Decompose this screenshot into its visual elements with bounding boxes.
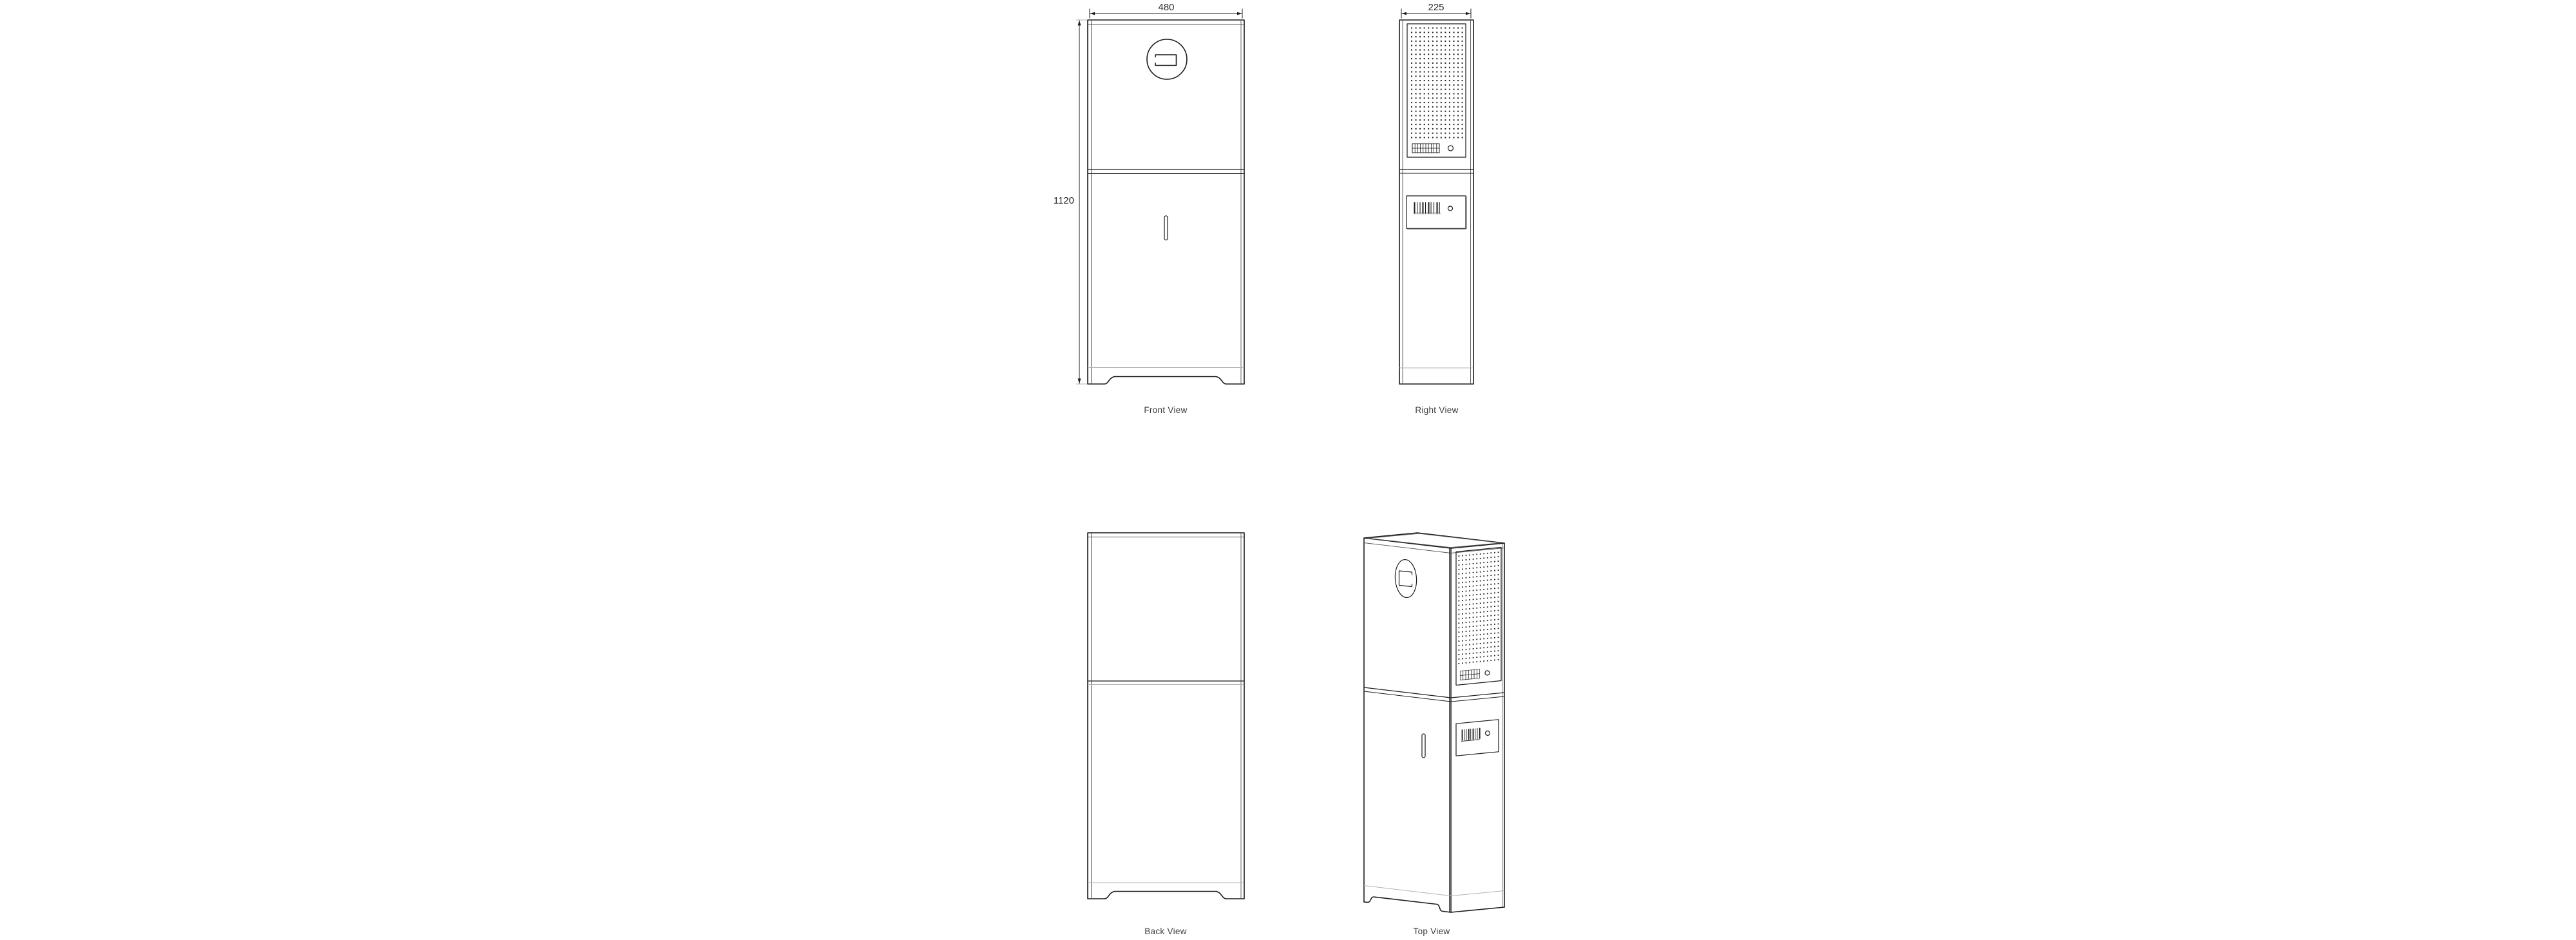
perforation-dot xyxy=(1476,647,1477,649)
perforation-dot xyxy=(1476,630,1477,631)
perforation-dot xyxy=(1476,554,1477,555)
perforation-dot xyxy=(1454,97,1455,99)
perforation-dot xyxy=(1436,62,1437,64)
perforation-dot xyxy=(1476,571,1477,573)
perforation-dot xyxy=(1428,137,1429,139)
perforation-dot xyxy=(1494,660,1495,661)
perforation-dot xyxy=(1462,662,1463,664)
perforation-dot xyxy=(1416,84,1417,86)
perforation-dot xyxy=(1490,584,1492,585)
perforation-dot xyxy=(1424,50,1425,51)
perforation-dot xyxy=(1462,53,1463,55)
perforation-dot xyxy=(1416,80,1417,81)
perforation-dot xyxy=(1473,559,1474,560)
perforation-dot xyxy=(1483,660,1484,662)
perforation-dot xyxy=(1498,624,1499,625)
perforation-dot xyxy=(1466,609,1467,610)
perforation-dot xyxy=(1480,647,1481,649)
perforation-dot xyxy=(1462,600,1463,601)
perforation-dot xyxy=(1416,106,1417,108)
perforation-dot xyxy=(1424,102,1425,103)
perforation-dot xyxy=(1476,603,1477,604)
perforation-dot xyxy=(1483,607,1484,608)
perforation-dot xyxy=(1487,575,1488,577)
perforation-dot xyxy=(1419,28,1421,29)
perforation-dot xyxy=(1462,32,1463,33)
perforation-dot xyxy=(1498,601,1499,602)
perforation-dot xyxy=(1487,602,1488,603)
perforation-dot xyxy=(1457,102,1459,103)
perforation-dot xyxy=(1432,67,1434,68)
perforation-dot xyxy=(1432,45,1434,46)
iso-front-top-seam xyxy=(1364,543,1451,553)
perforation-dot xyxy=(1428,53,1429,55)
barcode xyxy=(1414,202,1441,215)
perforation-dot xyxy=(1466,617,1467,619)
perforation-dot xyxy=(1487,624,1488,626)
perforation-dot xyxy=(1411,67,1412,68)
perforation-dot xyxy=(1476,657,1477,658)
perforation-dot xyxy=(1449,67,1450,68)
perforation-dot xyxy=(1436,50,1437,51)
perforation-dot xyxy=(1473,608,1474,609)
perforation-dot xyxy=(1441,45,1442,46)
perforation-dot xyxy=(1466,662,1467,664)
perforation-dot xyxy=(1462,128,1463,129)
perforation-dot xyxy=(1457,53,1459,55)
perforation-dot xyxy=(1469,581,1470,582)
perforation-dot xyxy=(1428,45,1429,46)
perforation-dot xyxy=(1436,80,1437,81)
perforation-dot xyxy=(1469,644,1470,646)
perforation-dot xyxy=(1419,45,1421,46)
perforation-dot xyxy=(1476,626,1477,627)
perforation-dot xyxy=(1457,36,1459,37)
perforation-dot xyxy=(1466,600,1467,601)
perforation-dot xyxy=(1457,133,1459,134)
perforation-dot xyxy=(1459,587,1460,588)
perforation-dot xyxy=(1483,557,1484,559)
iso-side-bottom-edge xyxy=(1451,907,1504,912)
perforation-dot xyxy=(1424,80,1425,81)
perforation-dot xyxy=(1428,115,1429,117)
perforation-dot xyxy=(1480,638,1481,640)
perforation-dot xyxy=(1454,106,1455,108)
right-outline xyxy=(1399,20,1473,384)
perforation-dot xyxy=(1416,50,1417,51)
iso-barcode xyxy=(1461,728,1481,742)
perforation-dot xyxy=(1454,137,1455,139)
perforation-dot xyxy=(1459,614,1460,615)
perforation-dot xyxy=(1480,562,1481,564)
perforation-dot xyxy=(1424,111,1425,112)
perforation-dot xyxy=(1436,133,1437,134)
perforation-dot xyxy=(1454,93,1455,95)
barcode-bar xyxy=(1439,202,1440,214)
perforation-dot xyxy=(1494,588,1495,589)
perforation-dot xyxy=(1469,613,1470,614)
perforation-dot xyxy=(1449,28,1450,29)
perforation-dot xyxy=(1473,581,1474,582)
perforation-dot xyxy=(1416,124,1417,125)
perforation-dot xyxy=(1444,124,1446,125)
perforation-dot xyxy=(1449,72,1450,73)
perforation-dot xyxy=(1462,640,1463,642)
perforation-dot xyxy=(1462,586,1463,588)
perforation-dot xyxy=(1454,41,1455,42)
right-depth-value: 225 xyxy=(1428,2,1444,13)
perforation-dot xyxy=(1454,102,1455,103)
perforation-dot xyxy=(1469,590,1470,591)
perforation-dot xyxy=(1490,642,1492,643)
perforation-dot xyxy=(1476,599,1477,600)
perforation-dot xyxy=(1449,137,1450,139)
perforation-dot xyxy=(1441,84,1442,86)
perforation-dot xyxy=(1436,124,1437,125)
perforation-dot xyxy=(1480,594,1481,595)
perforation-dot xyxy=(1462,569,1463,570)
top-view: Top View xyxy=(1364,533,1504,936)
perforation-dot xyxy=(1416,32,1417,33)
perforation-dot xyxy=(1411,115,1412,117)
perforation-dot xyxy=(1454,80,1455,81)
perforation-dots xyxy=(1411,28,1463,139)
perforation-dot xyxy=(1411,119,1412,120)
extension-lines xyxy=(1076,20,1087,384)
perforation-dot xyxy=(1473,653,1474,654)
perforation-dot xyxy=(1444,115,1446,117)
perforation-dot xyxy=(1436,102,1437,103)
perforation-dot xyxy=(1466,564,1467,565)
perforation-dot xyxy=(1444,67,1446,68)
perforation-dot xyxy=(1457,128,1459,129)
perforation-dot xyxy=(1454,53,1455,55)
perforation-dot xyxy=(1480,620,1481,622)
perforation-dot xyxy=(1494,628,1495,629)
front-width-value: 480 xyxy=(1158,2,1174,13)
perforation-dot xyxy=(1459,555,1460,557)
perforation-dot xyxy=(1483,638,1484,640)
perforation-dot xyxy=(1444,93,1446,95)
perforation-dot xyxy=(1449,128,1450,129)
perforation-dot xyxy=(1473,639,1474,640)
perforation-dot xyxy=(1419,72,1421,73)
perforation-dot xyxy=(1449,93,1450,95)
perforation-dot xyxy=(1459,609,1460,611)
perforation-dot xyxy=(1428,50,1429,51)
perforation-dot xyxy=(1444,28,1446,29)
perforation-dot xyxy=(1494,606,1495,607)
perforation-dot xyxy=(1490,566,1492,567)
perforation-dot xyxy=(1444,41,1446,42)
perforation-dot xyxy=(1469,595,1470,596)
perforation-dot xyxy=(1498,579,1499,580)
perforation-dot xyxy=(1462,97,1463,99)
arrow-right-icon xyxy=(1466,12,1471,15)
perforation-dot xyxy=(1462,119,1463,120)
perforation-dot xyxy=(1473,630,1474,631)
perforation-dot xyxy=(1494,619,1495,620)
perforation-dot xyxy=(1469,577,1470,578)
perforation-dot xyxy=(1487,557,1488,559)
perforation-dot xyxy=(1459,619,1460,620)
perforation-dot xyxy=(1487,611,1488,612)
perforation-dot xyxy=(1457,67,1459,68)
perforation-dot xyxy=(1444,111,1446,112)
perforation-dot xyxy=(1416,93,1417,95)
perforation-dot xyxy=(1419,84,1421,86)
perforation-dot xyxy=(1428,119,1429,120)
perforation-dot xyxy=(1469,572,1470,573)
perforation-dot xyxy=(1469,608,1470,609)
perforation-dot xyxy=(1441,41,1442,42)
perforation-dot xyxy=(1466,613,1467,614)
perforation-dot xyxy=(1459,569,1460,570)
perforation-dot xyxy=(1480,625,1481,626)
perforation-dot xyxy=(1457,137,1459,139)
perforation-dot xyxy=(1480,643,1481,644)
perforation-dot xyxy=(1462,618,1463,619)
perforation-dot xyxy=(1494,597,1495,598)
perforation-dot xyxy=(1462,72,1463,73)
perforation-dot xyxy=(1419,93,1421,95)
perforation-dot xyxy=(1454,84,1455,86)
perforation-dot xyxy=(1449,111,1450,112)
perforation-dot xyxy=(1494,552,1495,553)
perforation-dot xyxy=(1459,663,1460,664)
perforation-dot xyxy=(1462,654,1463,655)
perforation-dot xyxy=(1490,651,1492,652)
perforation-dot xyxy=(1424,58,1425,59)
barcode-bar xyxy=(1479,728,1481,739)
perforation-dot xyxy=(1498,570,1499,571)
perforation-dot xyxy=(1424,137,1425,139)
perforation-dot xyxy=(1441,67,1442,68)
perforation-dot xyxy=(1432,80,1434,81)
perforation-dot xyxy=(1444,58,1446,59)
perforation-dot xyxy=(1476,590,1477,591)
iso-side-top-seam xyxy=(1451,548,1504,553)
perforation-dot xyxy=(1466,555,1467,556)
barcode-bar xyxy=(1466,729,1466,740)
perforation-dot xyxy=(1469,649,1470,650)
iso-brand-logo-circle-icon xyxy=(1394,559,1417,598)
barcode-bar xyxy=(1470,729,1471,740)
perforation-dot xyxy=(1411,111,1412,112)
perforation-dot xyxy=(1419,50,1421,51)
perforation-dot xyxy=(1459,605,1460,606)
perforation-dot xyxy=(1469,626,1470,628)
perforation-dot xyxy=(1441,32,1442,33)
perforation-dot xyxy=(1462,80,1463,81)
perforation-dot xyxy=(1490,633,1492,634)
right-view: 225 Right View xyxy=(1399,2,1473,415)
perforation-dot xyxy=(1462,649,1463,651)
perforation-dot xyxy=(1457,50,1459,51)
perforation-dot xyxy=(1483,553,1484,554)
vent-indicator-circle xyxy=(1448,146,1454,151)
arrow-down-icon xyxy=(1078,379,1081,385)
iso-front-base-line xyxy=(1364,886,1451,896)
perforation-dot xyxy=(1498,588,1499,589)
perforation-dot xyxy=(1480,576,1481,577)
perforation-dot xyxy=(1419,53,1421,55)
perforation-dot xyxy=(1466,573,1467,574)
perforation-dot xyxy=(1424,119,1425,120)
perforation-dot xyxy=(1432,75,1434,77)
perforation-dot xyxy=(1441,119,1442,120)
perforation-dot xyxy=(1436,41,1437,42)
perforation-dot xyxy=(1419,111,1421,112)
perforation-dot xyxy=(1494,570,1495,571)
perforation-dot xyxy=(1449,45,1450,46)
perforation-dot xyxy=(1419,119,1421,120)
perforation-dot xyxy=(1466,568,1467,570)
perforation-dot xyxy=(1462,28,1463,29)
barcode-bar xyxy=(1475,728,1475,739)
perforation-dot xyxy=(1432,53,1434,55)
perforation-dot xyxy=(1436,32,1437,33)
perforation-dot xyxy=(1454,115,1455,117)
perforation-dot xyxy=(1416,72,1417,73)
perforation-dot xyxy=(1487,606,1488,608)
front-height-dimension: 1120 xyxy=(1054,20,1087,384)
perforation-dot xyxy=(1462,631,1463,633)
perforation-dot xyxy=(1444,97,1446,99)
perforation-dot xyxy=(1454,32,1455,33)
perforation-dot xyxy=(1466,591,1467,592)
perforation-dot xyxy=(1459,560,1460,561)
perforation-dot xyxy=(1462,67,1463,68)
perforation-dot xyxy=(1449,50,1450,51)
perforation-dot xyxy=(1457,111,1459,112)
barcode-bar xyxy=(1464,729,1464,740)
perforation-dot xyxy=(1498,615,1499,616)
perforation-dot xyxy=(1498,632,1499,633)
perforation-dot xyxy=(1457,115,1459,117)
perforation-dot xyxy=(1432,115,1434,117)
perforation-dot xyxy=(1454,72,1455,73)
perforation-dot xyxy=(1487,647,1488,648)
perforation-dot xyxy=(1462,582,1463,583)
door-handle-slot xyxy=(1164,216,1168,240)
perforation-dot xyxy=(1466,640,1467,641)
perforation-dot xyxy=(1462,115,1463,117)
perforation-dot xyxy=(1428,67,1429,68)
perforation-dot xyxy=(1462,36,1463,37)
perforation-dot xyxy=(1457,58,1459,59)
perforation-dot xyxy=(1428,32,1429,33)
perforation-dot xyxy=(1490,561,1492,562)
perforation-dot xyxy=(1498,610,1499,611)
perforation-dot xyxy=(1449,119,1450,120)
perforation-dot xyxy=(1444,133,1446,134)
perforation-dot xyxy=(1428,93,1429,95)
perforation-dot xyxy=(1476,621,1477,622)
perforation-dot xyxy=(1454,128,1455,129)
perforation-dot xyxy=(1462,636,1463,637)
perforation-dot xyxy=(1449,62,1450,64)
perforation-dot xyxy=(1498,650,1499,651)
perforation-dot xyxy=(1436,28,1437,29)
perforation-dot xyxy=(1494,615,1495,616)
perforation-dot xyxy=(1419,115,1421,117)
perforation-dot xyxy=(1487,597,1488,599)
perforation-dot xyxy=(1416,36,1417,37)
perforation-dot xyxy=(1424,45,1425,46)
perforation-dot xyxy=(1441,133,1442,134)
perforation-dot xyxy=(1462,102,1463,103)
perforation-dot xyxy=(1428,89,1429,90)
perforation-dot xyxy=(1428,80,1429,81)
perforation-dot xyxy=(1462,84,1463,86)
perforation-dot xyxy=(1457,119,1459,120)
perforation-dot xyxy=(1487,651,1488,653)
perforation-dot xyxy=(1487,656,1488,657)
perforation-dot xyxy=(1487,584,1488,586)
perforation-dot xyxy=(1494,651,1495,652)
perforation-dot xyxy=(1432,50,1434,51)
perforation-dot xyxy=(1436,111,1437,112)
perforation-dot xyxy=(1416,128,1417,129)
perforation-dot xyxy=(1432,28,1434,29)
perforation-dot xyxy=(1462,93,1463,95)
perforation-dot xyxy=(1441,93,1442,95)
perforation-dot xyxy=(1487,562,1488,563)
perforation-dot xyxy=(1424,28,1425,29)
perforation-dot xyxy=(1411,58,1412,59)
perforation-dot xyxy=(1487,638,1488,639)
perforation-dot xyxy=(1483,642,1484,644)
iso-brand-logo-glyph-icon xyxy=(1399,571,1412,587)
front-view: 480 1120 Front View xyxy=(1054,2,1244,415)
perforation-dot xyxy=(1494,557,1495,558)
barcode-bar xyxy=(1434,202,1434,214)
perforation-dot xyxy=(1444,72,1446,73)
perforation-dot xyxy=(1494,601,1495,602)
perforation-dot xyxy=(1457,97,1459,99)
perforation-dot xyxy=(1441,111,1442,112)
barcode-bar xyxy=(1437,202,1438,214)
perforation-dot xyxy=(1490,588,1492,590)
perforation-dot xyxy=(1487,580,1488,581)
perforation-dot xyxy=(1462,577,1463,579)
perforation-dot xyxy=(1487,660,1488,662)
perforation-dot xyxy=(1457,41,1459,42)
perforation-dot xyxy=(1436,53,1437,55)
perforation-dot xyxy=(1432,36,1434,37)
perforation-dot xyxy=(1432,111,1434,112)
drawing-sheet: 480 1120 Front View 225 xyxy=(0,0,2576,940)
perforation-dot xyxy=(1473,617,1474,618)
perforation-dot xyxy=(1462,609,1463,610)
perforation-dot xyxy=(1462,573,1463,574)
perforation-dot xyxy=(1419,124,1421,125)
perforation-dot xyxy=(1444,84,1446,86)
perforation-dot xyxy=(1424,41,1425,42)
perforation-dot xyxy=(1459,654,1460,655)
perforation-dot xyxy=(1432,124,1434,125)
perforation-dot xyxy=(1494,642,1495,643)
perforation-dot xyxy=(1476,639,1477,640)
perforation-dot xyxy=(1483,616,1484,617)
perforation-dot xyxy=(1436,45,1437,46)
perforation-dot xyxy=(1466,586,1467,588)
perforation-dot xyxy=(1462,89,1463,90)
perforation-dot xyxy=(1449,75,1450,77)
perforation-dot xyxy=(1498,592,1499,593)
barcode-bar xyxy=(1423,202,1424,214)
